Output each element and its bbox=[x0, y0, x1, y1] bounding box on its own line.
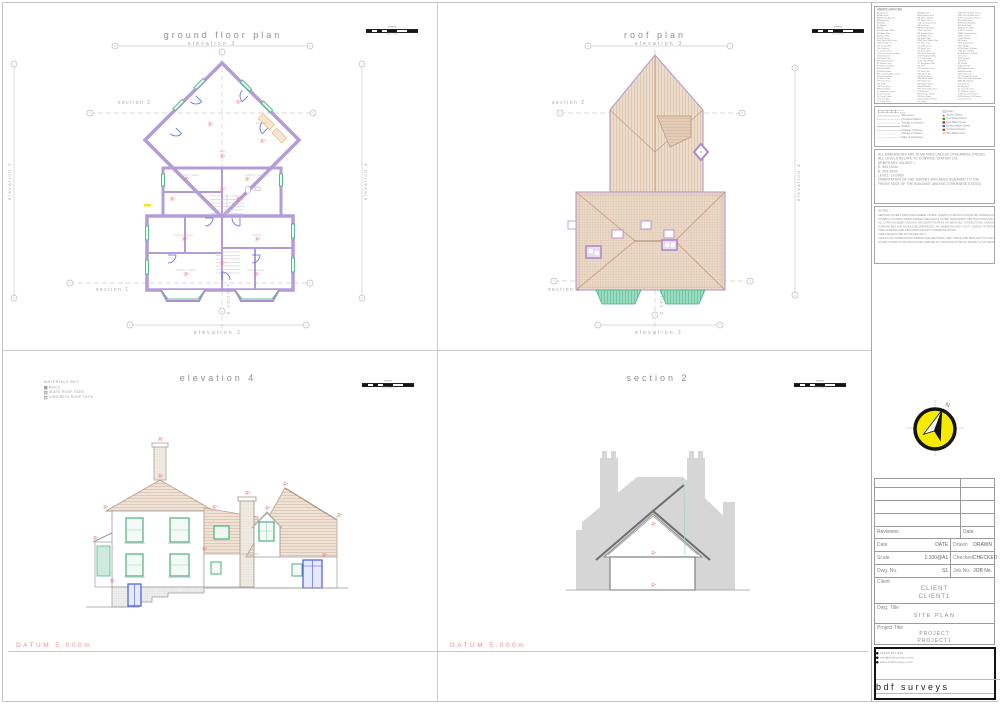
legend-label: Surface Water Sewer bbox=[946, 125, 970, 128]
date-label: Date bbox=[877, 542, 888, 548]
legend-label: Drainage Channel bbox=[901, 129, 921, 132]
website-url: www.bdfsurveys.com bbox=[880, 661, 913, 664]
material-swatch bbox=[44, 386, 47, 389]
legend-label: Rain Water Gully bbox=[946, 132, 965, 135]
title-block-tables: Revisions Date DateDATE DrawnDRAWN Scale… bbox=[874, 478, 995, 645]
revisions-header: Revisions Date bbox=[875, 527, 994, 539]
legend-label: Tree Study/Stump bbox=[946, 118, 966, 121]
roof-plan-title: roof plan bbox=[555, 30, 755, 40]
legend-label: Change in Surface bbox=[901, 133, 922, 136]
svg-text:play room: play room bbox=[248, 268, 265, 272]
legend-line-item: Edge of Vegetation bbox=[877, 136, 940, 140]
scale-bar: metres 0 1 2 3 4 5 bbox=[794, 378, 846, 391]
abbreviations-title: ABBREVIATIONS bbox=[877, 8, 930, 10]
project-title-label: Project Title bbox=[877, 625, 903, 631]
dwg-title-box: Dwg. Title SITE PLAN bbox=[875, 604, 994, 624]
project-name-2: PROJECT1 bbox=[875, 638, 994, 645]
svg-text:hall: hall bbox=[219, 149, 225, 153]
material-swatch bbox=[44, 391, 47, 394]
revisions-date-label: Date bbox=[961, 527, 994, 538]
drawn-value: DRAWN bbox=[973, 542, 992, 548]
project-title-box: Project Title PROJECT PROJECT1 bbox=[875, 624, 994, 644]
dwg-title-label: Dwg. Title bbox=[877, 605, 899, 611]
legend-label: Gate bbox=[948, 110, 953, 113]
lower-hip-roof bbox=[568, 192, 725, 290]
job-no-label: Job No. bbox=[953, 568, 970, 574]
svg-text:study: study bbox=[252, 233, 261, 237]
scale-checked-row: Scale1:100@A1 CheckedCHECKED bbox=[875, 552, 994, 565]
symbol-swatch bbox=[943, 118, 945, 120]
stairs bbox=[210, 194, 244, 273]
dimension-notes-box: ALL DIMENSIONS ARE IN METRES UNLESS OTHE… bbox=[874, 149, 995, 204]
legend-box: Top Bottom Wire Fence Overhead Cables bbox=[874, 106, 995, 147]
elevation-1-label: elevation 1 bbox=[118, 330, 318, 336]
scale-value: 1:100@A1 bbox=[924, 555, 948, 561]
abbreviations-box: ABBREVIATIONS AD Air DuctAV Air ValveBB … bbox=[874, 6, 995, 104]
material-label: CONCRETE ROOF TILES bbox=[49, 396, 93, 399]
materials-key: MATERIALS KEY BRICK SLATE ROOF TILES CON… bbox=[44, 380, 149, 400]
materials-key-item: CONCRETE ROOF TILES bbox=[44, 395, 149, 400]
contact-details: 01234 567 890 info@bdfsurveys.com www.bd… bbox=[876, 651, 941, 665]
legend-label: Wire Fence bbox=[901, 115, 914, 118]
legend-label: Kerbline bbox=[901, 125, 910, 128]
email-icon bbox=[876, 657, 879, 660]
symbol-swatch bbox=[943, 125, 945, 127]
section-1-label: section 1 bbox=[96, 287, 130, 293]
client-box: Client CLIENT CLIENT1 bbox=[875, 578, 994, 604]
plan-windows bbox=[146, 78, 295, 274]
legend-label: Edge of Vegetation bbox=[901, 136, 922, 139]
svg-text:family room: family room bbox=[176, 268, 196, 272]
section-2-title: section 2 bbox=[558, 373, 758, 383]
dwgno-jobno-row: Dwg. No.S1 Job No.JOB No. bbox=[875, 565, 994, 578]
yellow-marker bbox=[144, 204, 151, 207]
scale-bar: metres 0 1 2 3 4 5 bbox=[362, 378, 414, 391]
section-1-label: section 1 bbox=[548, 287, 582, 293]
client-name: CLIENT bbox=[875, 586, 994, 594]
material-label: BRICK bbox=[49, 386, 60, 389]
scale-bar: metres 0 1 2 3 4 5 bbox=[366, 24, 418, 37]
svg-text:kitchen: kitchen bbox=[256, 121, 268, 125]
elevation-3-sublabel: elevation 3 bbox=[112, 41, 312, 47]
elevation-4-label: elevation 4 bbox=[796, 163, 801, 201]
client-name-2: CLIENT1 bbox=[875, 594, 994, 602]
title-block: ABBREVIATIONS AD Air DuctAV Air ValveBB … bbox=[871, 3, 998, 701]
drawing-sheet: elevation 2 elevation 4 section 3 bbox=[0, 0, 1000, 704]
company-name: bdf surveys bbox=[876, 679, 1000, 692]
phone-number: 01234 567 890 bbox=[880, 652, 903, 655]
ground-floor-plan-title: ground floor plan bbox=[123, 30, 323, 40]
upper-roof bbox=[610, 55, 708, 192]
legend-label: Combined Sewer bbox=[946, 128, 965, 131]
elevation-3-sublabel: elevation 3 bbox=[559, 41, 759, 47]
scale-bar: metres 0 1 2 3 4 5 bbox=[812, 24, 864, 37]
revision-row bbox=[875, 479, 994, 488]
symbol-swatch bbox=[943, 114, 945, 116]
revision-row bbox=[875, 501, 994, 514]
abbreviations-list: AD Air DuctAV Air ValveBB Belisha Beacon… bbox=[877, 12, 995, 103]
symbol-swatch bbox=[943, 121, 945, 123]
datum-label: DATUM 5.000m bbox=[16, 642, 92, 649]
elevation-2-label: elevation 2 bbox=[7, 162, 12, 200]
north-compass: N bbox=[906, 398, 964, 456]
section-2-label: section 2 bbox=[552, 100, 586, 106]
scale-bar-unit: metres bbox=[382, 26, 403, 28]
date-value: DATE bbox=[935, 542, 948, 548]
elevation-1-label: elevation 1 bbox=[559, 330, 759, 336]
symbol-swatch bbox=[943, 129, 945, 131]
section-2-label: section 2 bbox=[118, 100, 152, 106]
plan-walls bbox=[145, 63, 299, 290]
line-style-sample bbox=[877, 126, 900, 127]
checked-value: CHECKED bbox=[973, 555, 997, 561]
note-line: OF BDF SURVEYS AND SHOULD BE VERIFIED BY… bbox=[878, 241, 995, 245]
roof-plan-drawing: elevation 4 section 3 bbox=[438, 0, 870, 350]
checked-label: Checked bbox=[953, 555, 973, 561]
scale-label: Scale bbox=[877, 555, 890, 561]
notes-box: NOTES :- SERVICE COVERS INDICATED WHERE … bbox=[874, 206, 995, 264]
company-logo-box: 01234 567 890 info@bdfsurveys.com www.bd… bbox=[874, 647, 996, 700]
phone-icon bbox=[876, 652, 879, 655]
abbreviation-entry: GY Gully bbox=[917, 101, 957, 104]
revisions-label: Revisions bbox=[875, 527, 961, 538]
material-swatch bbox=[44, 396, 47, 399]
datum-label: DATUM 5.000m bbox=[450, 642, 526, 649]
legend-label: Survey Station bbox=[946, 114, 962, 117]
revision-row bbox=[875, 514, 994, 527]
extension bbox=[204, 488, 337, 588]
date-drawn-row: DateDATE DrawnDRAWN bbox=[875, 539, 994, 552]
web-icon bbox=[876, 661, 879, 664]
job-no-value: JOB No. bbox=[973, 568, 992, 574]
legend-label: Overhead Cables bbox=[901, 118, 921, 121]
revision-row bbox=[875, 488, 994, 501]
abbreviation-entry: LP Lamp Post bbox=[877, 101, 917, 104]
abbreviation-entry: CILL Cill Level bbox=[958, 98, 995, 101]
dwg-no-label: Dwg. No. bbox=[877, 568, 898, 574]
material-label: SLATE ROOF TILES bbox=[49, 391, 84, 394]
svg-text:dining room: dining room bbox=[179, 173, 199, 177]
dwg-no-value: S1 bbox=[942, 568, 948, 574]
company-tagline: TOPOGRAPHICAL | MEASURED BUILDING | UTIL… bbox=[876, 693, 994, 698]
main-house bbox=[93, 443, 214, 607]
bay-roofs bbox=[596, 290, 705, 304]
legend-symbol-item: Rain Water Gully bbox=[943, 131, 995, 135]
datum-line bbox=[8, 651, 869, 652]
svg-text:sitting room: sitting room bbox=[245, 173, 265, 177]
symbol-swatch bbox=[943, 111, 947, 113]
north-label: N bbox=[944, 402, 950, 409]
svg-text:living room: living room bbox=[175, 233, 194, 237]
scale-bar-ticks: 0 1 2 3 4 5 bbox=[383, 33, 401, 34]
symbol-swatch bbox=[943, 132, 945, 134]
legend-label: Foul Water Sewer bbox=[946, 121, 966, 124]
guide-markers bbox=[11, 43, 365, 328]
dimension-note-line: FRONT FACE OF THE BUILDING UNLESS OTHERW… bbox=[878, 182, 995, 186]
client-label: Client bbox=[877, 579, 890, 585]
legend-label: Change in Direction bbox=[901, 122, 923, 125]
ground-floor-plan-drawing: elevation 2 elevation 4 section 3 bbox=[0, 0, 438, 350]
materials-key-title: MATERIALS KEY bbox=[44, 380, 149, 384]
drawn-label: Drawn bbox=[953, 542, 967, 548]
email-address: info@bdfsurveys.com bbox=[880, 656, 914, 659]
rooflight bbox=[214, 526, 229, 539]
elevation-4-label: elevation 4 bbox=[363, 162, 368, 200]
